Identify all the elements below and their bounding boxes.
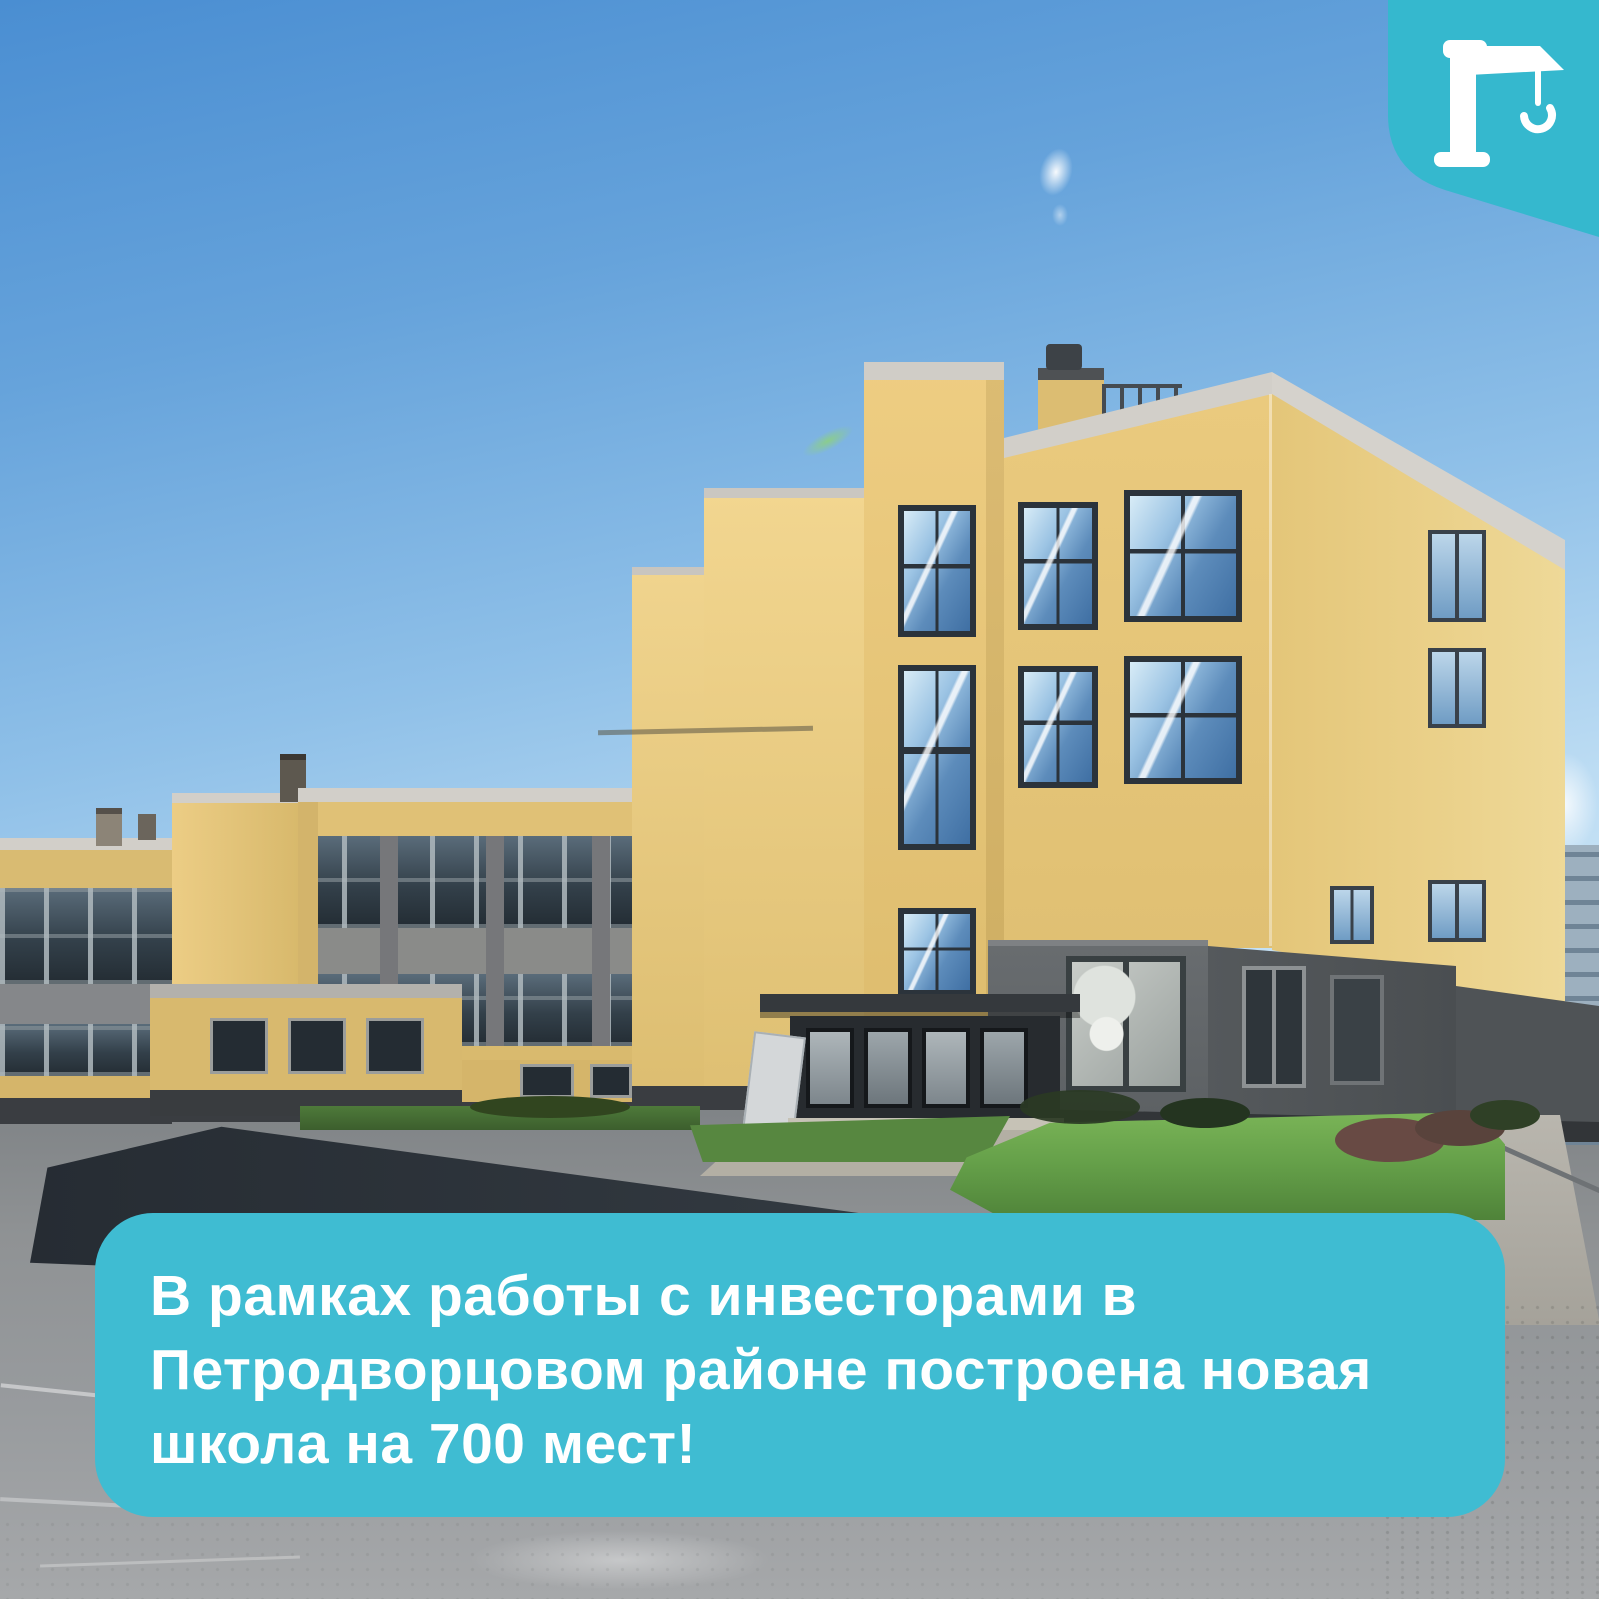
entrance-door-pane (980, 1028, 1028, 1108)
lens-flare-small (1052, 204, 1068, 226)
annex-side-window (1330, 975, 1384, 1085)
window (1428, 530, 1486, 622)
center-wall-a (632, 567, 706, 1108)
roof-chimney-small (138, 814, 156, 840)
center-wall-a-cornice (632, 567, 706, 575)
window (210, 1018, 268, 1074)
center-wall-b-cornice (704, 488, 864, 498)
tower-edge-shade (986, 380, 1004, 1000)
entrance-door-pane (864, 1028, 912, 1108)
left-block-glazing-upper (0, 888, 172, 984)
caption-line: школа на 700 мест! (150, 1407, 1465, 1481)
annex-side-window (1242, 966, 1306, 1088)
left-wing-pier (486, 836, 504, 1046)
bushes (1160, 1098, 1250, 1128)
left-wing-cornice (298, 788, 638, 802)
window (288, 1018, 346, 1074)
bushes (1020, 1090, 1140, 1124)
window (1428, 648, 1486, 728)
window (898, 908, 976, 996)
left-block-wall (0, 1076, 172, 1098)
window (898, 505, 976, 637)
window (366, 1018, 424, 1074)
caption-line: Петродворцовом районе построена новая (150, 1333, 1465, 1407)
low-wing-cornice (150, 984, 462, 998)
caption-panel: В рамках работы с инвесторами в Петродво… (95, 1213, 1505, 1517)
roof-equipment (1046, 344, 1082, 370)
annex-window (1066, 956, 1186, 1092)
social-post-image: В рамках работы с инвесторами в Петродво… (0, 0, 1599, 1599)
left-wing-pier (592, 836, 610, 1046)
entrance-tower-cornice (864, 362, 1004, 380)
left-block-glazing-lower (0, 1024, 172, 1076)
roof-chimney-small (96, 808, 122, 846)
left-block-parapet (0, 850, 172, 888)
window (1428, 880, 1486, 942)
caption-line: В рамках работы с инвесторами в (150, 1259, 1465, 1333)
bushes (470, 1096, 630, 1118)
brand-badge (1388, 0, 1599, 240)
window (1330, 886, 1374, 944)
window (1018, 502, 1098, 630)
window (520, 1064, 574, 1098)
left-block-spandrel (0, 984, 172, 1024)
bushes (1470, 1100, 1540, 1130)
left-wing-spandrel (298, 928, 638, 974)
entrance-canopy (760, 994, 1080, 1012)
window (1018, 666, 1098, 788)
left-block-plinth (0, 1098, 172, 1124)
left-wing-glazing-floor3 (298, 836, 638, 928)
badge-background (1388, 0, 1599, 237)
left-wing-parapet (298, 802, 638, 836)
pavement-texture (0, 1517, 1599, 1599)
entrance-door-pane (922, 1028, 970, 1108)
window (590, 1064, 632, 1098)
window (1124, 490, 1242, 622)
window (1124, 656, 1242, 784)
window (898, 665, 976, 850)
entrance-door-pane (806, 1028, 854, 1108)
building-corner-highlight (1269, 394, 1272, 946)
